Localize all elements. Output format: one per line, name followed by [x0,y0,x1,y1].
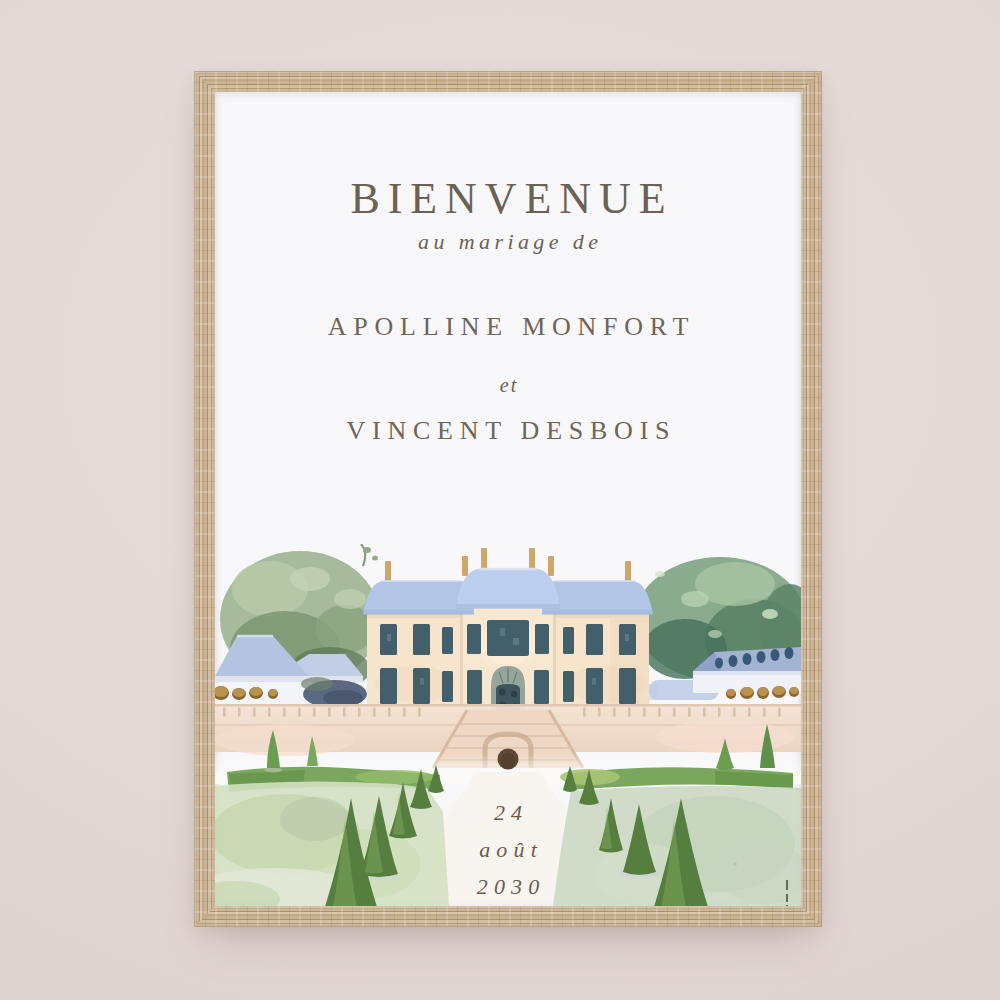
frame-top [194,71,822,92]
photo-scene: BIENVENUE au mariage de APOLLINE MONFORT… [0,0,1000,1000]
chateau [355,548,655,730]
poster-paper: BIENVENUE au mariage de APOLLINE MONFORT… [215,92,801,906]
date-month: août [215,831,801,868]
frame-bottom [194,906,822,927]
frame-left [194,71,215,927]
poster-subtitle: au mariage de [215,231,801,253]
groom-name: VINCENT DESBOIS [215,418,801,444]
bride-name: APOLLINE MONFORT [215,314,801,340]
wooden-frame: BIENVENUE au mariage de APOLLINE MONFORT… [194,71,822,927]
poster-title: BIENVENUE [215,177,801,221]
wedding-date: 24 août 2030 [215,794,801,905]
conjunction: et [215,375,801,395]
date-year: 2030 [215,868,801,905]
date-day: 24 [215,794,801,831]
frame-right [801,71,822,927]
